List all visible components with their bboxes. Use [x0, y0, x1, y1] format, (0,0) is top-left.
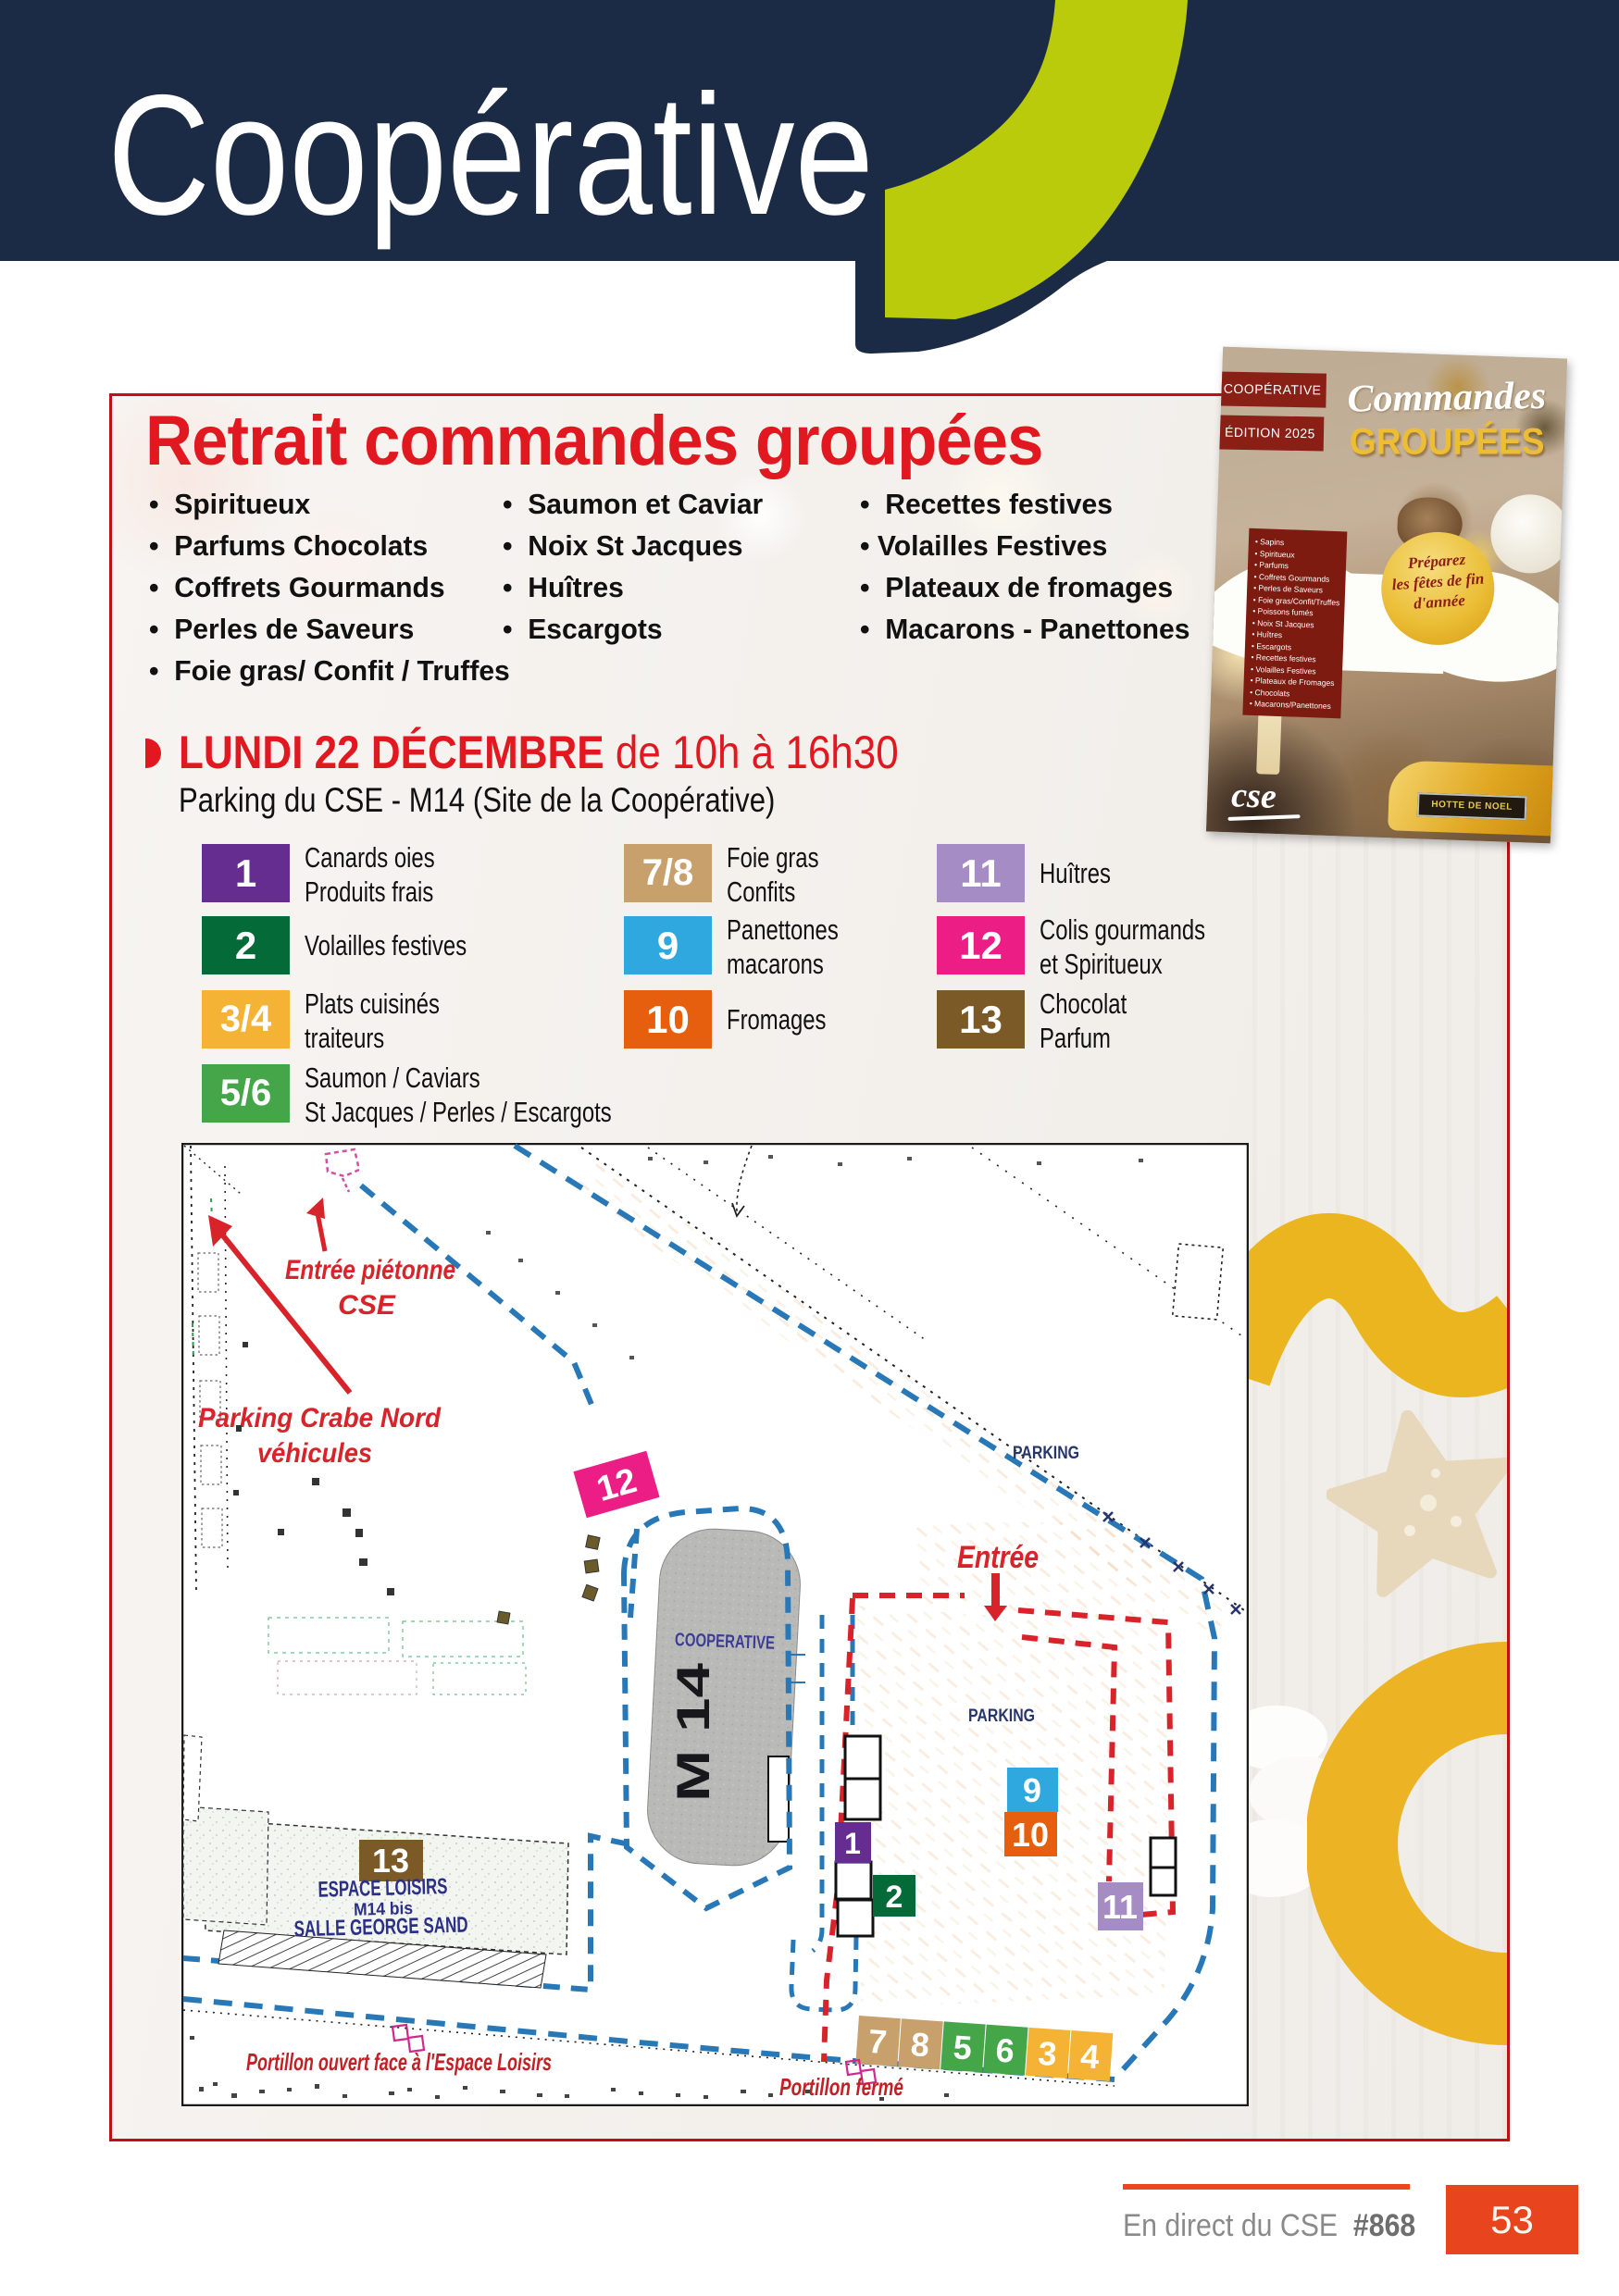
svg-text:5: 5: [952, 2028, 973, 2066]
svg-text:9: 9: [1023, 1771, 1041, 1809]
svg-text:6: 6: [994, 2030, 1015, 2069]
svg-text:COOPERATIVE: COOPERATIVE: [675, 1630, 776, 1654]
svg-text:11: 11: [1102, 1888, 1138, 1926]
svg-text:Entrée: Entrée: [957, 1540, 1039, 1575]
svg-text:7: 7: [867, 2022, 889, 2061]
svg-text:4: 4: [1079, 2037, 1101, 2076]
svg-text:SALLE GEORGE SAND: SALLE GEORGE SAND: [293, 1913, 468, 1942]
svg-text:13: 13: [372, 1842, 409, 1880]
svg-text:10: 10: [1012, 1816, 1049, 1854]
svg-text:3: 3: [1037, 2034, 1058, 2073]
svg-text:Portillon ouvert face à l'Espa: Portillon ouvert face à l'Espace Loisirs: [246, 2048, 552, 2076]
svg-text:CSE: CSE: [338, 1290, 396, 1321]
svg-text:ESPACE LOISIRS: ESPACE LOISIRS: [318, 1874, 448, 1903]
svg-text:Entrée piétonne: Entrée piétonne: [285, 1255, 455, 1285]
svg-text:PARKING: PARKING: [1013, 1444, 1079, 1463]
svg-text:2: 2: [886, 1880, 903, 1915]
svg-text:M 14: M 14: [667, 1663, 719, 1802]
svg-text:Portillon fermé: Portillon fermé: [779, 2073, 903, 2101]
svg-text:véhicules: véhicules: [257, 1438, 372, 1469]
svg-text:Parking Crabe Nord: Parking Crabe Nord: [198, 1403, 442, 1433]
svg-text:PARKING: PARKING: [968, 1706, 1035, 1726]
svg-text:1: 1: [844, 1827, 861, 1860]
svg-text:8: 8: [910, 2025, 931, 2064]
